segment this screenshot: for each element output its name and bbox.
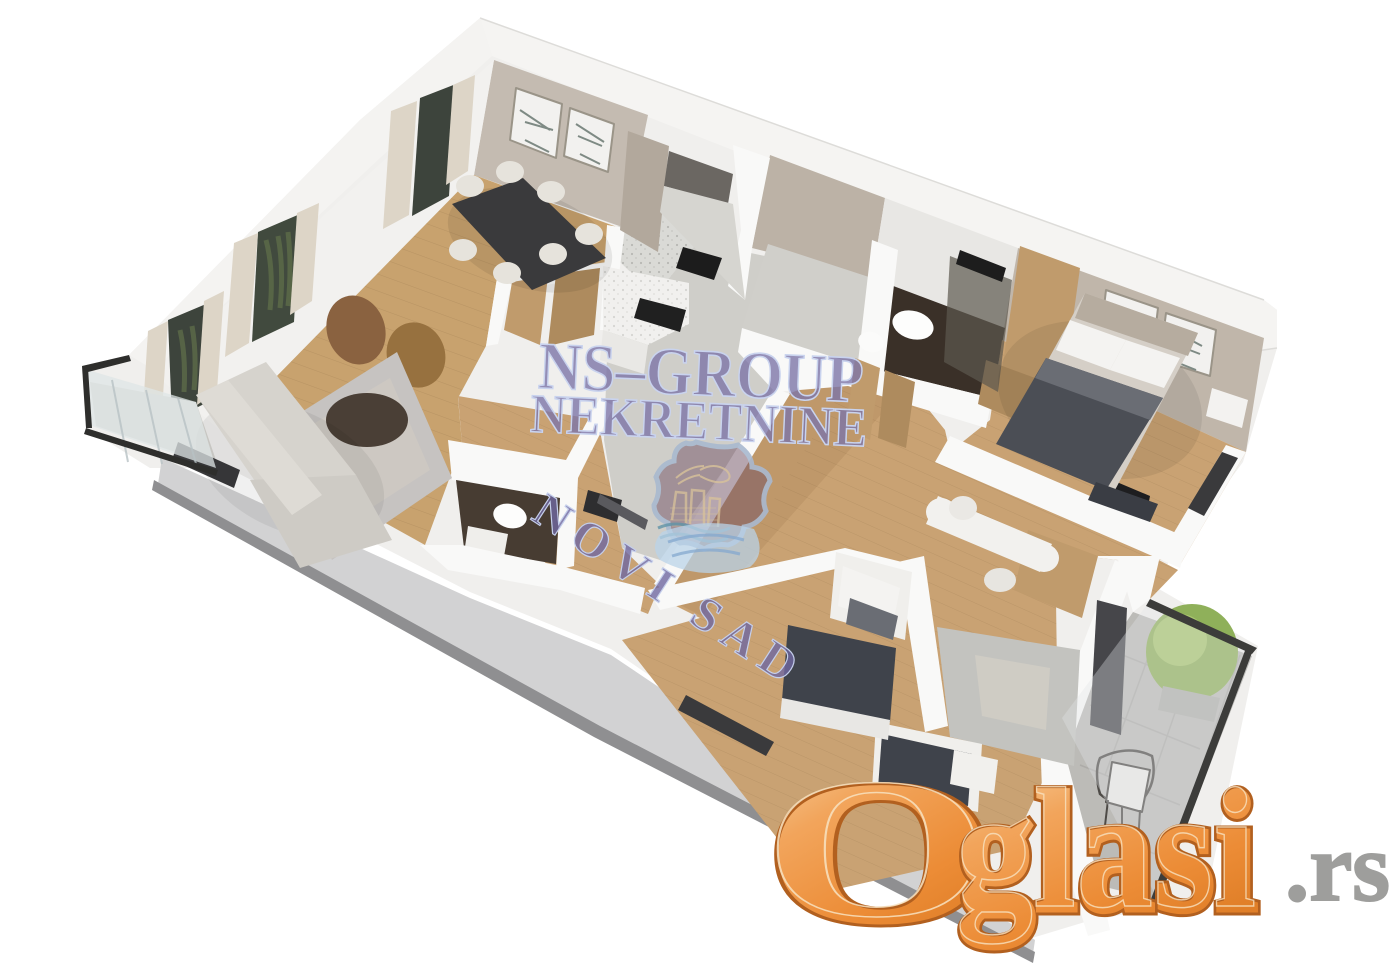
svg-text:.rs: .rs — [1285, 814, 1390, 921]
svg-text:glasi: glasi — [956, 754, 1256, 944]
